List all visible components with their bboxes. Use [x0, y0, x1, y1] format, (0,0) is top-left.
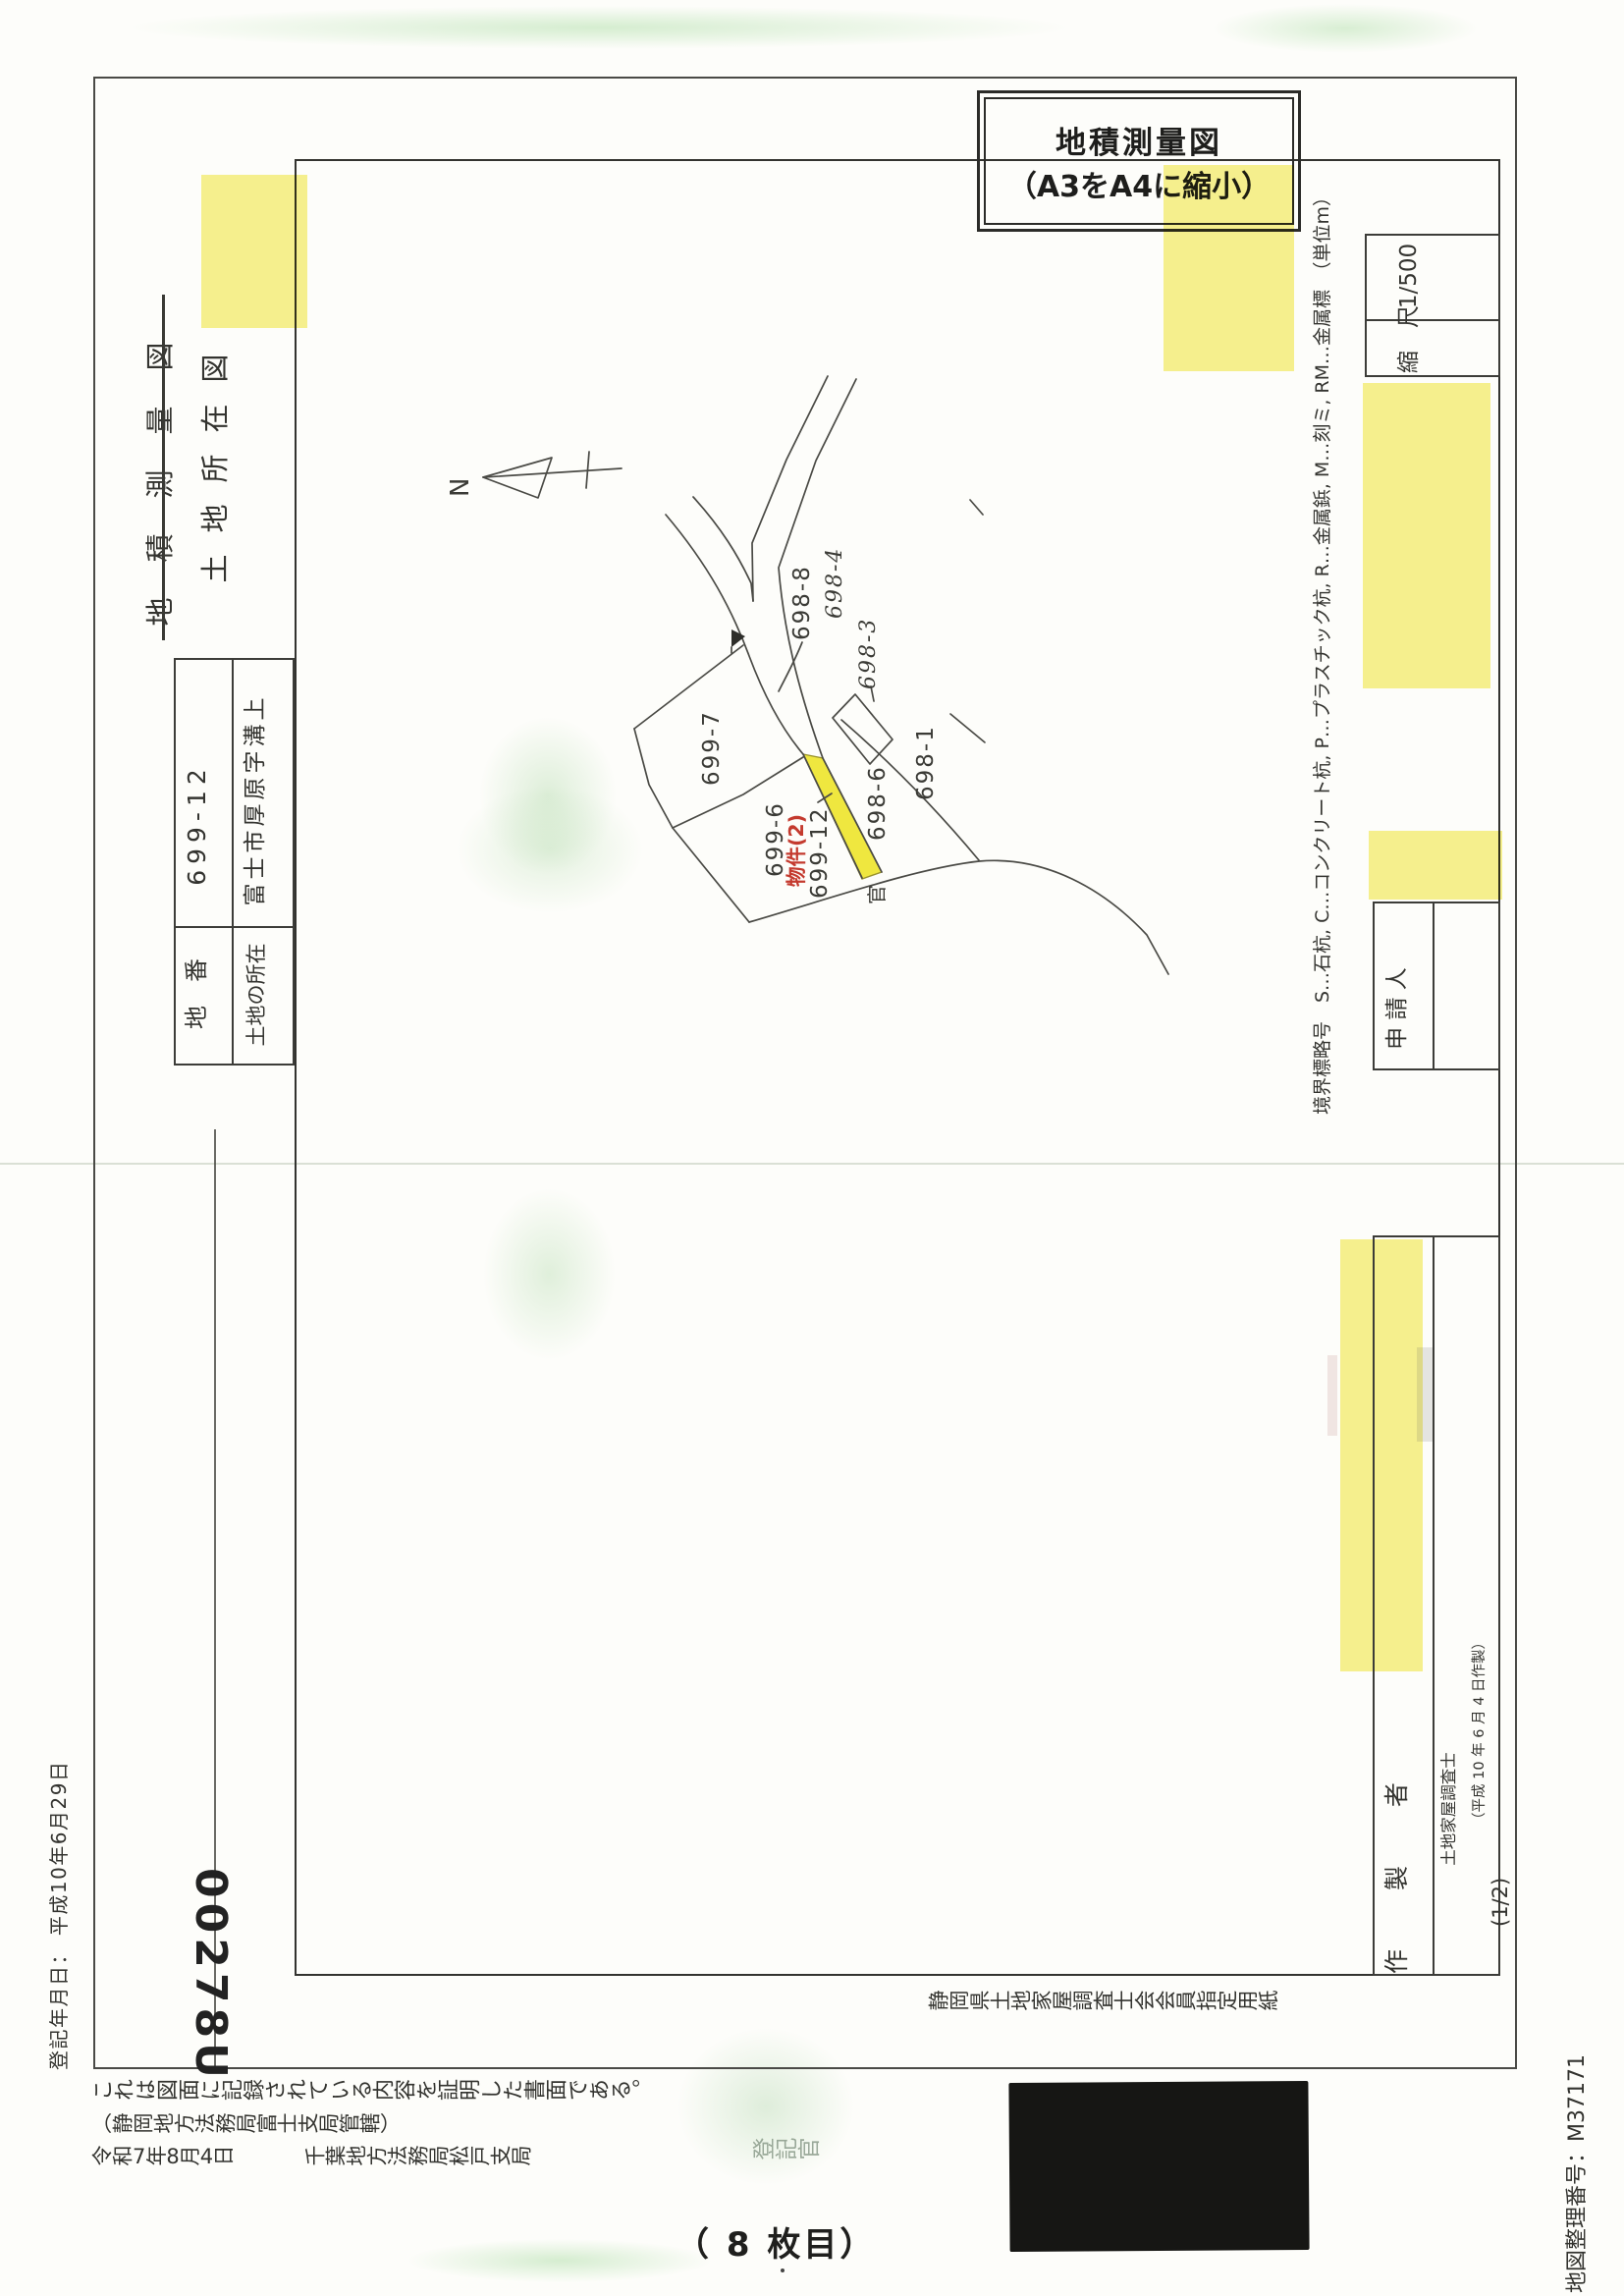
preparer-label: 作 製 者 [1384, 1787, 1416, 1974]
parcel-label-698-3-handwritten: 698-3 [858, 619, 882, 689]
preparer-title: 土地家屋調査士 [1441, 1750, 1465, 1868]
scale-box-divider [1365, 319, 1500, 321]
applicant-label: 申 請 人 [1386, 960, 1416, 1057]
applicant-box-divider [1433, 902, 1435, 1070]
parcel-label-698-4-handwritten: 698-4 [825, 548, 848, 619]
stray-dot [781, 2269, 785, 2272]
parcel-label-699-12: 699-12 [809, 800, 833, 899]
parcel-label-698-1: 698-1 [915, 726, 939, 800]
preparer-date: （平成 10 年 6 月 4 日作製） [1473, 1527, 1490, 1827]
parcel-label-698-8: 698-8 [791, 562, 815, 640]
map-number: 地図整理番号：M37171 [1567, 1998, 1595, 2293]
scanned-cadastral-survey-document: { "stamp": { "line1": "地積測量図", "line2": … [0, 0, 1624, 2296]
registrar-label-faint: 登記官 [752, 2141, 840, 2168]
scale-value: 1/500 [1398, 238, 1428, 314]
certification-line-2: （静岡地方法務局富士支局管轄） [91, 2114, 425, 2140]
certification-office: 千葉地方法務局松戸支局 [304, 2147, 540, 2172]
parcel-label-699-7: 699-7 [701, 707, 725, 786]
government-land-label: 官 [867, 877, 889, 904]
black-redaction-box [1008, 2081, 1309, 2252]
scale-box [1365, 234, 1500, 377]
page-count-note: （ 8 枚目） [676, 2217, 876, 2266]
preparer-box-divider [1433, 1235, 1435, 1976]
subject-annotation-red: 物件(2) [786, 808, 808, 887]
certification-line-1: これは図面に記録されている内容を証明した書面である。 [91, 2082, 641, 2108]
parcel-boundaries [634, 645, 1168, 974]
north-arrow-icon [483, 452, 622, 498]
north-label: N [448, 465, 475, 497]
page-fraction: (1/2) [1490, 1862, 1516, 1927]
parcel-label-698-6: 698-6 [867, 766, 891, 841]
certification-date: 令和7年8月4日 [91, 2147, 268, 2172]
boundary-marker-legend: 境界標略号 S…石杭, C…コンクリート杭, P…プラスチック杭, R…金属鋲,… [1314, 282, 1339, 1115]
scale-label: 縮 尺 [1398, 322, 1428, 373]
paper-designation-note: 静岡県土地家屋調査士会会員指定用紙 [928, 1992, 1313, 2016]
